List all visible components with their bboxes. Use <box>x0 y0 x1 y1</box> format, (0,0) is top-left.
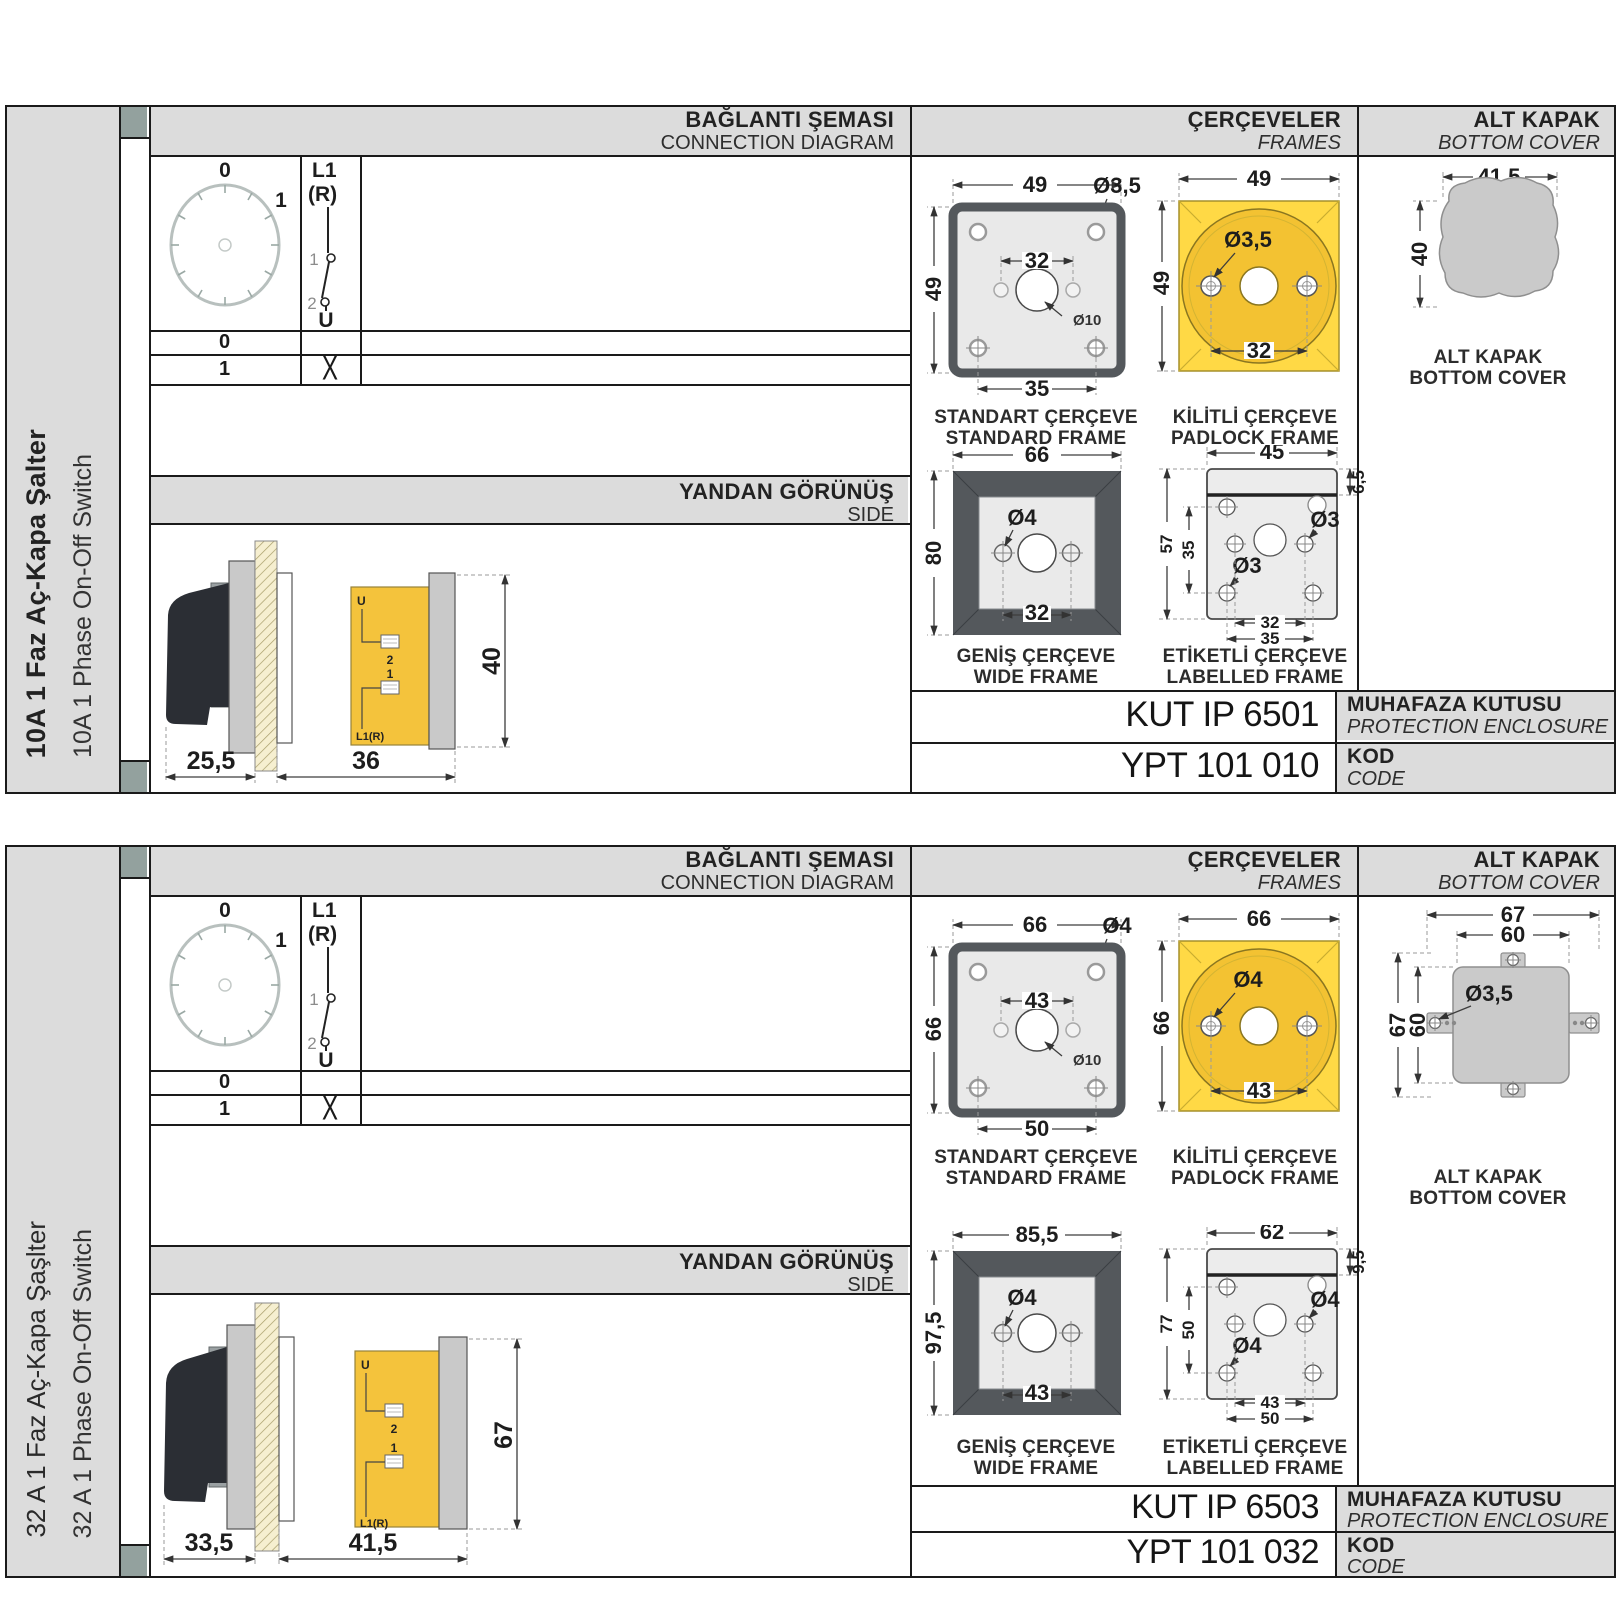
contact-2-label: 2 <box>307 294 316 313</box>
switch-dial-diagram: 0 1 <box>151 157 299 327</box>
corner-marker-bottom <box>121 1546 147 1576</box>
product-title-tr: 32 A 1 Faz Aç-Kapa Şaşlter <box>21 1221 52 1538</box>
enclosure-label-cell: MUHAFAZA KUTUSU PROTECTION ENCLOSURE <box>1337 1487 1614 1531</box>
order-code-value: YPT 101 032 <box>910 1531 1335 1576</box>
cover-header: ALT KAPAK BOTTOM COVER <box>1359 105 1614 154</box>
bottom-cover-drawing: 41,5 40 <box>1365 159 1615 344</box>
contact-1-label: 1 <box>309 250 318 269</box>
svg-text:45: 45 <box>1260 445 1284 464</box>
dim-corner-hole: Ø3,5 <box>1093 173 1141 198</box>
dial-center-icon <box>219 239 231 251</box>
standard-frame-label: STANDART ÇERÇEVE STANDARD FRAME <box>921 407 1151 449</box>
svg-text:43: 43 <box>1025 988 1049 1013</box>
corner-marker-top <box>121 107 147 137</box>
switch-dial-diagram: 0 1 <box>151 897 299 1067</box>
dim-hole-left: Ø4 <box>1232 1333 1262 1358</box>
labelled-frame-label: ETİKETLİ ÇERÇEVE LABELLED FRAME <box>1145 646 1365 688</box>
enclosure-label-cell: MUHAFAZA KUTUSU PROTECTION ENCLOSURE <box>1337 692 1614 740</box>
switch-body <box>355 1351 439 1527</box>
padlock-frame-label: KİLİTLİ ÇERÇEVE PADLOCK FRAME <box>1145 407 1365 449</box>
standard-frame-drawing: 49 Ø3,5 49 32 Ø10 35 <box>921 159 1151 405</box>
terminal-l1-label: L1 <box>312 899 337 922</box>
enclosure-code-value: KUT IP 6501 <box>910 690 1335 742</box>
switch-handle <box>164 1347 227 1502</box>
contact-symbol: L1 (R) 1 2 U <box>302 897 358 1069</box>
dial-center-icon <box>219 979 231 991</box>
mounting-panel <box>255 541 277 771</box>
side-view-drawing: U 2 1 L1(R) 40 25,5 36 <box>151 525 907 791</box>
labelled-frame-drawing: 62 9,5 77 50 Ø4 Ø4 43 <box>1151 1225 1366 1429</box>
labelled-frame-drawing: 45 6,5 57 35 Ø3 Ø3 32 <box>1151 445 1366 649</box>
dim-height: 67 <box>490 1421 518 1449</box>
terminal-r-label: (R) <box>308 923 337 946</box>
row-position-1: 1 <box>149 1094 300 1124</box>
contact-2-label: 2 <box>307 1034 316 1053</box>
cover-header: ALT KAPAK BOTTOM COVER <box>1359 845 1614 894</box>
body-u-label: U <box>361 1358 370 1372</box>
product-title-en: 10A 1 Phase On-Off Switch <box>69 454 98 758</box>
standard-frame-drawing: 66 Ø4 66 43 Ø10 50 <box>921 899 1151 1145</box>
svg-text:66: 66 <box>1025 445 1049 467</box>
contact-closed-mark: X <box>306 1092 354 1127</box>
svg-text:85,5: 85,5 <box>1016 1225 1059 1247</box>
dim-center-hole: Ø10 <box>1073 1052 1101 1069</box>
svg-text:60: 60 <box>1405 1013 1430 1037</box>
svg-text:57: 57 <box>1157 535 1176 554</box>
dial-pos-0: 0 <box>219 899 231 922</box>
side-view-header: YANDAN GÖRÜNÜŞ SIDE <box>149 477 908 526</box>
svg-text:66: 66 <box>1023 912 1047 937</box>
dim-cover-hole: Ø3,5 <box>1465 981 1513 1006</box>
product-title-en: 32 A 1 Phase On-Off Switch <box>69 1229 98 1538</box>
frames-header: ÇERÇEVELER FRAMES <box>912 105 1355 154</box>
corner-marker-top <box>121 847 147 877</box>
wide-frame-drawing: 66 80 Ø4 32 <box>921 445 1151 643</box>
row-position-0: 0 <box>149 330 300 354</box>
terminal-u-label: U <box>318 309 333 329</box>
side-view-header: YANDAN GÖRÜNÜŞ SIDE <box>149 1247 908 1296</box>
terminal-r-label: (R) <box>308 183 337 206</box>
svg-text:35: 35 <box>1025 376 1049 401</box>
connection-header: BAĞLANTI ŞEMASI CONNECTION DIAGRAM <box>149 845 908 894</box>
svg-text:66: 66 <box>1151 1011 1174 1035</box>
labelled-frame-label: ETİKETLİ ÇERÇEVE LABELLED FRAME <box>1145 1437 1365 1479</box>
row-position-1: 1 <box>149 354 300 384</box>
svg-text:50: 50 <box>1261 1409 1280 1428</box>
side-view-drawing: U 2 1 L1(R) 67 33,5 41,5 <box>151 1295 907 1576</box>
dim-wide-hole: Ø4 <box>1007 1285 1037 1310</box>
dial-pos-1: 1 <box>275 189 287 212</box>
svg-text:60: 60 <box>1501 922 1525 947</box>
dim-hole-right: Ø3 <box>1310 507 1339 532</box>
svg-text:50: 50 <box>1025 1116 1049 1141</box>
dim-height: 40 <box>478 647 506 675</box>
order-code-label-cell: KOD CODE <box>1337 744 1614 792</box>
dim-center-hole: Ø10 <box>1073 312 1101 329</box>
dim-hole-left: Ø3 <box>1232 553 1261 578</box>
terminal-2-label: 2 <box>387 653 394 667</box>
bottom-cover-label: ALT KAPAK BOTTOM COVER <box>1362 1167 1614 1209</box>
terminal-u-label: U <box>318 1049 333 1069</box>
contact-symbol: L1 (R) 1 2 U <box>302 157 358 329</box>
dim-corner-hole: Ø4 <box>1102 913 1132 938</box>
svg-text:77: 77 <box>1157 1315 1176 1334</box>
dim-depth-front: 33,5 <box>185 1529 234 1557</box>
svg-text:66: 66 <box>1247 906 1271 931</box>
svg-text:62: 62 <box>1260 1225 1284 1244</box>
dim-wide-hole: Ø4 <box>1007 505 1037 530</box>
padlock-frame-drawing: 66 66 Ø4 43 <box>1151 899 1363 1145</box>
wide-frame-label: GENİŞ ÇERÇEVE WIDE FRAME <box>921 1437 1151 1479</box>
dim-padlock-hole: Ø3,5 <box>1224 227 1272 252</box>
svg-text:49: 49 <box>921 277 946 301</box>
svg-text:49: 49 <box>1151 271 1174 295</box>
svg-text:32: 32 <box>1247 338 1271 363</box>
dim-depth-back: 41,5 <box>349 1529 398 1557</box>
dial-pos-0: 0 <box>219 159 231 182</box>
terminal-1-label: 1 <box>387 667 394 681</box>
svg-text:43: 43 <box>1025 1380 1049 1405</box>
svg-text:32: 32 <box>1025 600 1049 625</box>
svg-text:40: 40 <box>1407 242 1432 266</box>
standard-frame-label: STANDART ÇERÇEVE STANDARD FRAME <box>921 1147 1151 1189</box>
row-position-0: 0 <box>149 1070 300 1094</box>
dim-padlock-hole: Ø4 <box>1233 967 1263 992</box>
terminal-1-label: 1 <box>391 1441 398 1455</box>
order-code-value: YPT 101 010 <box>910 742 1335 792</box>
wide-frame-drawing: 85,5 97,5 Ø4 43 <box>921 1225 1151 1423</box>
svg-text:80: 80 <box>921 541 946 565</box>
dim-depth-back: 36 <box>352 747 380 775</box>
product-title-tr: 10A 1 Faz Aç-Kapa Şalter <box>21 429 52 758</box>
body-l1r-label: L1(R) <box>356 731 384 743</box>
dial-pos-1: 1 <box>275 929 287 952</box>
connection-header: BAĞLANTI ŞEMASI CONNECTION DIAGRAM <box>149 105 908 154</box>
contact-1-label: 1 <box>309 990 318 1009</box>
svg-text:35: 35 <box>1179 541 1198 560</box>
switch-handle <box>166 583 229 725</box>
cover-shape <box>1439 177 1558 297</box>
wide-frame-label: GENİŞ ÇERÇEVE WIDE FRAME <box>921 646 1151 688</box>
corner-marker-bottom <box>121 762 147 792</box>
svg-text:32: 32 <box>1025 248 1049 273</box>
padlock-frame-drawing: 49 49 Ø3,5 32 <box>1151 159 1363 405</box>
dim-hole-right: Ø4 <box>1310 1287 1340 1312</box>
product-section-32a: 32 A 1 Faz Aç-Kapa Şaşlter 32 A 1 Phase … <box>5 845 1616 1578</box>
svg-text:43: 43 <box>1247 1078 1271 1103</box>
contact-closed-mark: X <box>306 352 354 387</box>
svg-text:49: 49 <box>1023 172 1047 197</box>
dim-depth-front: 25,5 <box>187 747 236 775</box>
enclosure-code-value: KUT IP 6503 <box>910 1485 1335 1531</box>
order-code-label-cell: KOD CODE <box>1337 1533 1614 1576</box>
bottom-cover-label: ALT KAPAK BOTTOM COVER <box>1362 347 1614 389</box>
svg-text:66: 66 <box>921 1017 946 1041</box>
svg-text:50: 50 <box>1179 1321 1198 1340</box>
bottom-cover-drawing: 67 60 67 60 Ø3,5 <box>1365 899 1615 1161</box>
product-section-10a: 10A 1 Faz Aç-Kapa Şalter 10A 1 Phase On-… <box>5 105 1616 794</box>
terminal-l1-label: L1 <box>312 159 337 182</box>
frames-header: ÇERÇEVELER FRAMES <box>912 845 1355 894</box>
mounting-panel <box>255 1303 279 1551</box>
body-u-label: U <box>357 594 366 608</box>
svg-text:97,5: 97,5 <box>921 1312 946 1355</box>
padlock-frame-label: KİLİTLİ ÇERÇEVE PADLOCK FRAME <box>1145 1147 1365 1189</box>
svg-text:49: 49 <box>1247 166 1271 191</box>
terminal-2-label: 2 <box>391 1422 398 1436</box>
